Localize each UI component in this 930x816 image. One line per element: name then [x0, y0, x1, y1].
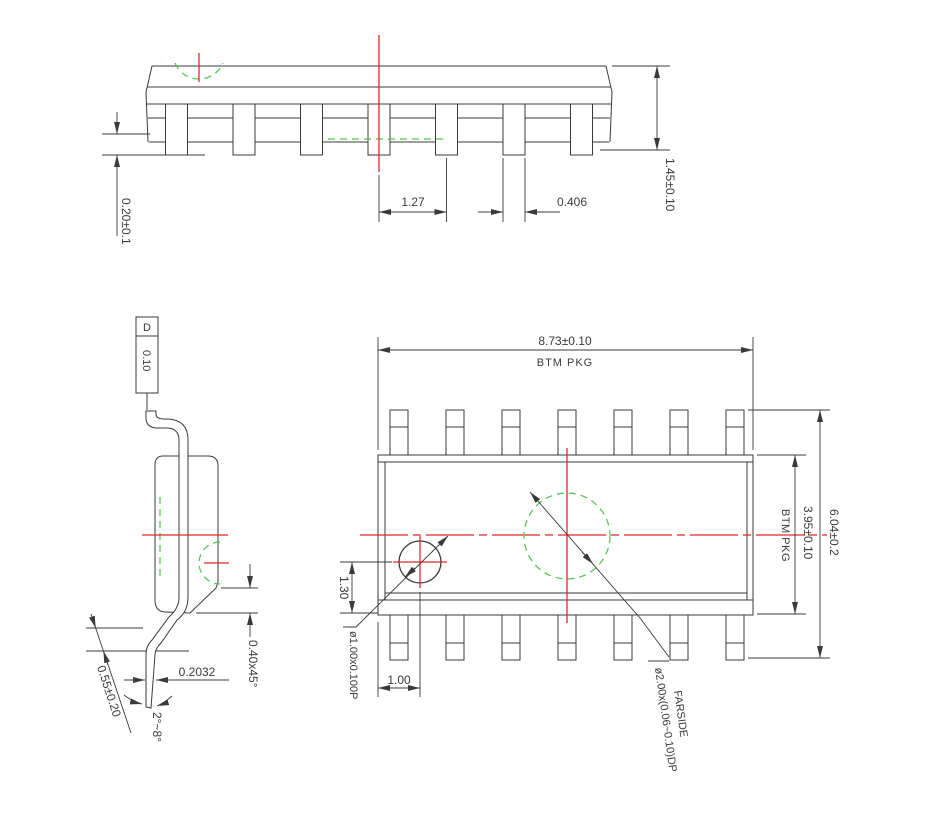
lead: [446, 410, 464, 455]
standoff-dimension: 0.20±0.1: [102, 112, 205, 245]
lead: [503, 104, 525, 155]
height-value: 1.45±0.10: [663, 158, 677, 212]
pitch-dimension: 1.27: [379, 158, 447, 222]
lead-thickness-value: 0.2032: [179, 665, 216, 679]
lead-thickness-dimension: 0.2032: [124, 665, 229, 680]
chamfer-value: 0.40x45°: [246, 640, 260, 688]
body-depth-note: BTM PKG: [779, 509, 791, 562]
lead: [166, 104, 188, 155]
lead: [614, 410, 632, 455]
lead: [436, 104, 458, 155]
overall-depth-dimension: 6.04±0.2: [748, 410, 841, 658]
lead: [614, 615, 632, 660]
lead: [502, 410, 520, 455]
lead: [670, 615, 688, 660]
dim-arrow: [91, 614, 96, 628]
body-depth-value: 3.95±0.10: [801, 506, 815, 560]
datum-letter: D: [143, 322, 151, 334]
lead: [390, 615, 408, 660]
lead: [670, 410, 688, 455]
pin1-offset-x-value: 1.00: [387, 673, 411, 687]
lead: [571, 104, 593, 155]
datum-frame: D 0.10: [136, 317, 158, 410]
lead: [233, 104, 255, 155]
farside-marker-value: ø2.00x(0.06~0.10)DP: [652, 667, 679, 773]
ic-package-drawing: 0.20±0.1 1.27 0.406 1.45±0.10 D 0.10: [0, 0, 930, 816]
body-width-note: BTM PKG: [537, 357, 594, 369]
package-drawing-canvas: 0.20±0.1 1.27 0.406 1.45±0.10 D 0.10: [0, 0, 930, 816]
datum-tolerance: 0.10: [140, 350, 152, 371]
lead: [446, 615, 464, 660]
lead: [726, 410, 744, 455]
foot-length-value: 0.55±0.20: [94, 664, 124, 719]
lead-width-dimension: 0.406: [478, 158, 587, 222]
pin1-offset-y-value: 1.30: [337, 576, 351, 600]
overall-depth-value: 6.04±0.2: [827, 509, 841, 556]
body-width-value: 8.73±0.10: [538, 334, 592, 348]
lead: [390, 410, 408, 455]
angle-arrow: [157, 696, 172, 706]
angle-arrow: [124, 695, 142, 704]
bottom-view: 8.73±0.10 BTM PKG 6.04±0.2 3.95±0.10 BTM…: [337, 334, 841, 773]
end-view: D 0.10 0.55±0.20 0.40x45°: [86, 317, 260, 742]
lead: [502, 615, 520, 660]
pitch-value: 1.27: [401, 195, 425, 209]
standoff-value: 0.20±0.1: [119, 198, 133, 245]
foot-angle-value: 2°~8°: [150, 712, 164, 742]
lead: [726, 615, 744, 660]
lead-width-value: 0.406: [557, 195, 587, 209]
foot-length-dimension: 0.55±0.20: [86, 614, 189, 733]
pin1-marker-value: ø1.00x0.100P: [347, 631, 359, 700]
lead: [301, 104, 323, 155]
side-view: 0.20±0.1 1.27 0.406 1.45±0.10: [102, 35, 677, 245]
